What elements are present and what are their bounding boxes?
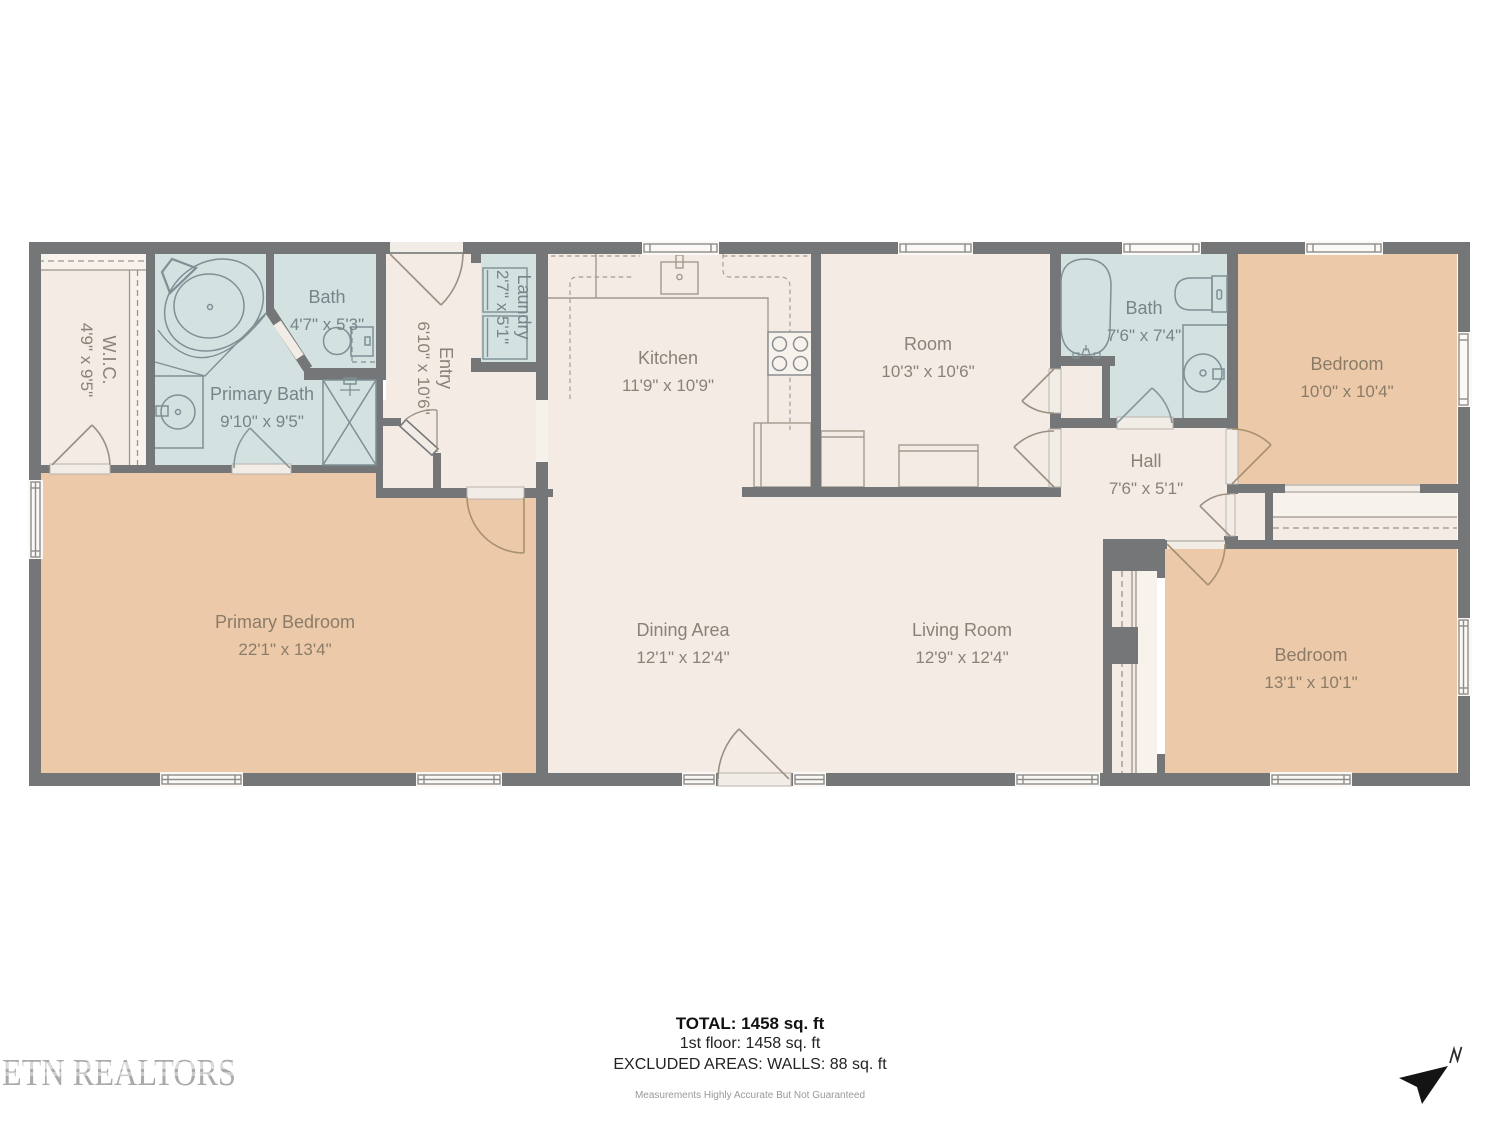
svg-text:Primary Bedroom: Primary Bedroom bbox=[215, 612, 355, 632]
svg-text:Bedroom: Bedroom bbox=[1310, 354, 1383, 374]
svg-text:7'6" x 5'1": 7'6" x 5'1" bbox=[1109, 479, 1183, 498]
svg-text:9'10" x 9'5": 9'10" x 9'5" bbox=[220, 412, 304, 431]
svg-text:Measurements Highly Accurate B: Measurements Highly Accurate But Not Gua… bbox=[635, 1090, 865, 1101]
svg-text:2'7" x 5'1": 2'7" x 5'1" bbox=[493, 270, 512, 344]
svg-text:Bath: Bath bbox=[1125, 298, 1162, 318]
svg-text:Laundry: Laundry bbox=[514, 274, 534, 339]
svg-text:Kitchen: Kitchen bbox=[638, 348, 698, 368]
svg-text:Bedroom: Bedroom bbox=[1274, 645, 1347, 665]
svg-text:22'1" x 13'4": 22'1" x 13'4" bbox=[238, 640, 331, 659]
svg-text:12'9" x 12'4": 12'9" x 12'4" bbox=[915, 648, 1008, 667]
svg-text:1st floor: 1458 sq. ft: 1st floor: 1458 sq. ft bbox=[680, 1035, 821, 1052]
svg-text:13'1" x 10'1": 13'1" x 10'1" bbox=[1264, 673, 1357, 692]
svg-text:6'10" x 10'6": 6'10" x 10'6" bbox=[414, 321, 433, 414]
svg-text:W.I.C.: W.I.C. bbox=[99, 336, 119, 385]
svg-text:Dining Area: Dining Area bbox=[636, 620, 730, 640]
svg-text:4'7" x 5'3": 4'7" x 5'3" bbox=[290, 315, 364, 334]
svg-text:Room: Room bbox=[904, 334, 952, 354]
svg-text:11'9" x 10'9": 11'9" x 10'9" bbox=[622, 376, 714, 395]
svg-text:EXCLUDED AREAS: WALLS: 88 sq.: EXCLUDED AREAS: WALLS: 88 sq. ft bbox=[613, 1056, 887, 1073]
svg-text:TOTAL: 1458 sq. ft: TOTAL: 1458 sq. ft bbox=[676, 1014, 825, 1033]
svg-text:10'0" x 10'4": 10'0" x 10'4" bbox=[1300, 382, 1393, 401]
svg-text:Living Room: Living Room bbox=[912, 620, 1012, 640]
svg-text:7'6" x 7'4": 7'6" x 7'4" bbox=[1107, 326, 1181, 345]
svg-text:Entry: Entry bbox=[436, 347, 456, 389]
svg-text:Hall: Hall bbox=[1130, 451, 1161, 471]
svg-text:4'9" x 9'5": 4'9" x 9'5" bbox=[77, 323, 96, 397]
svg-text:Primary Bath: Primary Bath bbox=[210, 384, 314, 404]
svg-text:12'1" x 12'4": 12'1" x 12'4" bbox=[636, 648, 729, 667]
svg-text:10'3" x 10'6": 10'3" x 10'6" bbox=[881, 362, 974, 381]
svg-text:Bath: Bath bbox=[308, 287, 345, 307]
